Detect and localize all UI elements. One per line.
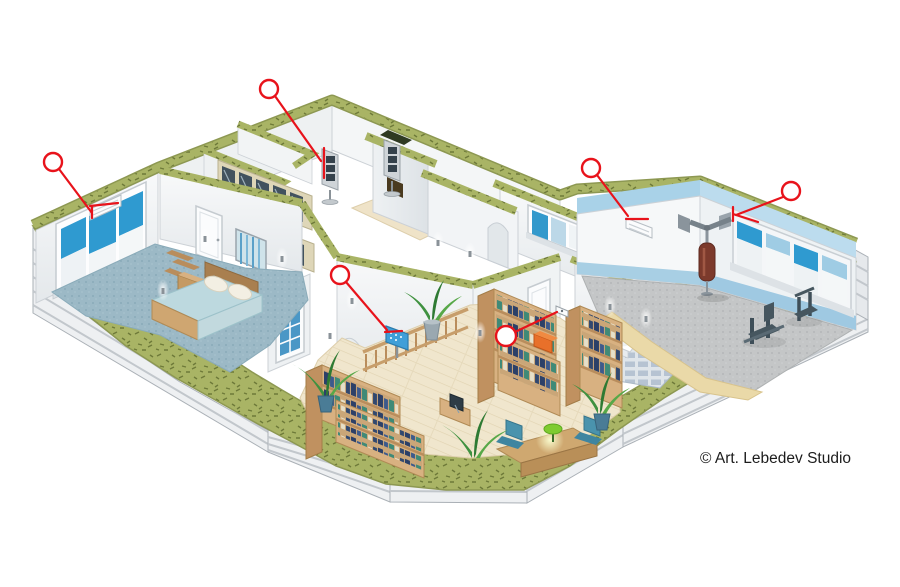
callout-circle-icon[interactable] [582, 159, 600, 177]
callout-circle-icon[interactable] [782, 182, 800, 200]
callout-circle-icon[interactable] [331, 266, 349, 284]
illustration-canvas: © Art. Lebedev Studio [0, 0, 900, 587]
hallway-arch [488, 223, 508, 268]
callout-circle-icon[interactable] [44, 153, 62, 171]
house-cutaway-svg: © Art. Lebedev Studio [0, 0, 900, 587]
callout-leader-line [385, 331, 402, 332]
callout-circle-icon[interactable] [496, 326, 516, 346]
copyright-text: © Art. Lebedev Studio [700, 450, 851, 467]
callout-circle-icon[interactable] [260, 80, 278, 98]
